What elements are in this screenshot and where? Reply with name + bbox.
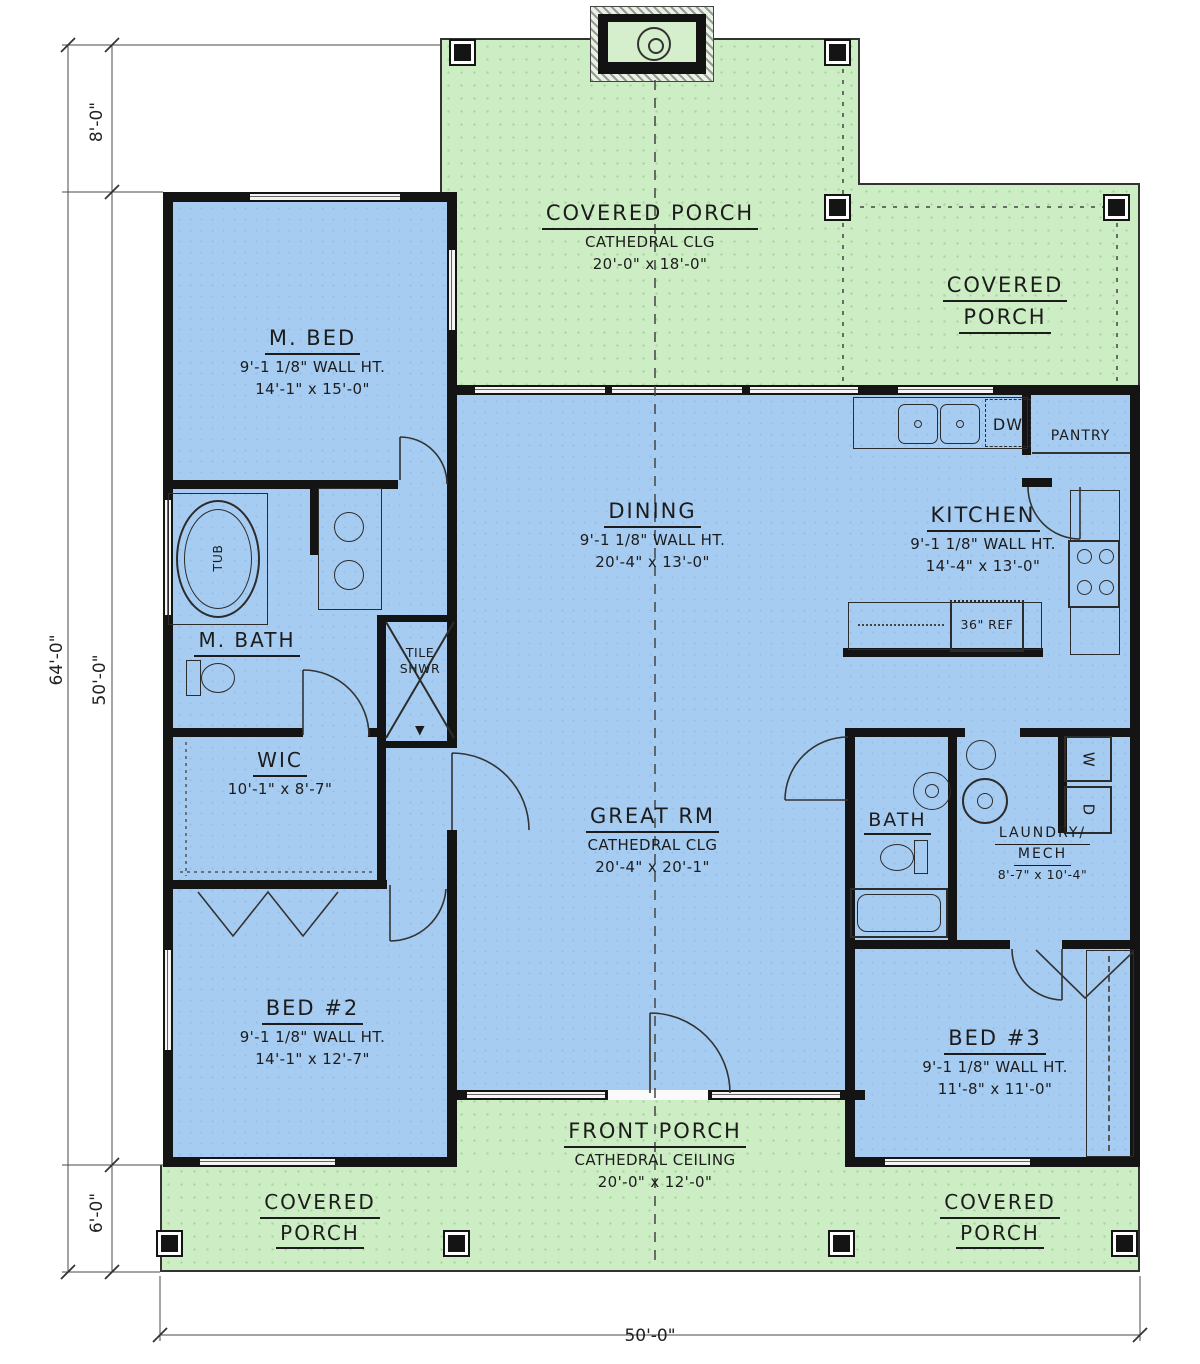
label-bed3: BED #3 9'-1 1/8" WALL HT. 11'-8" x 11'-0… — [855, 1025, 1135, 1099]
dim-bottom-offset: 6'-0" — [87, 1171, 107, 1255]
label-covered-porch-top: COVERED PORCH CATHEDRAL CLG 20'-0" x 18'… — [460, 200, 840, 274]
porch-post — [449, 39, 476, 66]
label-bed2: BED #2 9'-1 1/8" WALL HT. 14'-1" x 12'-7… — [175, 995, 450, 1069]
label-covered-porch-top-right: COVERED PORCH — [905, 272, 1105, 336]
label-great-room: GREAT RM CATHEDRAL CLG 20'-4" x 20'-1" — [490, 803, 815, 877]
dim-overall-height: 64'-0" — [47, 618, 67, 702]
porch-post — [443, 1230, 470, 1257]
dim-top-offset: 8'-0" — [87, 80, 107, 164]
label-wic: WIC 10'-1" x 8'-7" — [195, 748, 365, 799]
room-size: 20'-0" x 18'-0" — [460, 255, 840, 274]
label-m-bed: M. BED 9'-1 1/8" WALL HT. 14'-1" x 15'-0… — [175, 325, 450, 399]
label-covered-porch-bottom-left: COVERED PORCH — [220, 1190, 420, 1251]
wall-height: 9'-1 1/8" WALL HT. — [855, 1058, 1135, 1077]
porch-post — [1103, 194, 1130, 221]
room-size: 20'-4" x 20'-1" — [490, 858, 815, 877]
room-name: COVERED — [940, 1190, 1060, 1219]
label-m-bath: M. BATH — [172, 628, 322, 657]
porch-post — [156, 1230, 183, 1257]
room-size: 20'-0" x 12'-0" — [460, 1173, 850, 1192]
room-name: LAUNDRY/ — [995, 825, 1090, 845]
label-covered-porch-bottom-right: COVERED PORCH — [900, 1190, 1100, 1251]
room-name: WIC — [253, 748, 307, 777]
room-name: COVERED — [260, 1190, 380, 1219]
room-name: MECH — [1014, 846, 1071, 866]
room-size: 14'-1" x 12'-7" — [175, 1050, 450, 1069]
room-size: 8'-7" x 10'-4" — [955, 867, 1130, 883]
porch-post — [1111, 1230, 1138, 1257]
wall-height: 9'-1 1/8" WALL HT. — [490, 531, 815, 550]
label-pantry: PANTRY — [1028, 428, 1133, 446]
label-front-porch: FRONT PORCH CATHEDRAL CEILING 20'-0" x 1… — [460, 1118, 850, 1192]
room-name: PORCH — [276, 1221, 364, 1250]
wall-height: 9'-1 1/8" WALL HT. — [175, 1028, 450, 1047]
room-size: 20'-4" x 13'-0" — [490, 553, 815, 572]
porch-post — [828, 1230, 855, 1257]
shower-head-mark: ▼ — [408, 722, 432, 738]
room-name: GREAT RM — [586, 803, 719, 833]
ceiling-note: CATHEDRAL CLG — [490, 836, 815, 855]
ceiling-note: CATHEDRAL CEILING — [460, 1151, 850, 1170]
room-name: M. BED — [265, 325, 360, 355]
room-size: 14'-1" x 15'-0" — [175, 380, 450, 399]
floor-plan: COVERED PORCH CATHEDRAL CLG 20'-0" x 18'… — [0, 0, 1200, 1364]
room-size: 11'-8" x 11'-0" — [855, 1080, 1135, 1099]
room-name: BED #2 — [262, 995, 363, 1025]
room-name: PORCH — [959, 304, 1050, 334]
porch-post — [824, 39, 851, 66]
label-dining: DINING 9'-1 1/8" WALL HT. 20'-4" x 13'-0… — [490, 498, 815, 572]
dim-overall-width: 50'-0" — [590, 1326, 710, 1346]
room-name: BED #3 — [944, 1025, 1045, 1055]
label-washer: W — [1078, 748, 1097, 772]
wall-height: 9'-1 1/8" WALL HT. — [858, 535, 1108, 554]
room-name: PORCH — [956, 1221, 1044, 1250]
wall-height: 9'-1 1/8" WALL HT. — [175, 358, 450, 377]
label-kitchen: KITCHEN 9'-1 1/8" WALL HT. 14'-4" x 13'-… — [858, 502, 1108, 576]
label-laundry: LAUNDRY/ MECH 8'-7" x 10'-4" — [955, 825, 1130, 883]
room-name: TILE — [385, 645, 455, 661]
room-name: KITCHEN — [927, 502, 1040, 532]
label-tub: TUB — [210, 528, 226, 588]
label-bath: BATH — [850, 808, 945, 835]
room-name: DINING — [604, 498, 700, 528]
room-name: COVERED PORCH — [542, 200, 758, 230]
room-name: FRONT PORCH — [564, 1118, 746, 1148]
room-name: SHWR — [385, 661, 455, 677]
room-name: COVERED — [943, 272, 1068, 302]
room-name: M. BATH — [194, 628, 299, 657]
ceiling-note: CATHEDRAL CLG — [460, 233, 840, 252]
label-dryer: D — [1078, 798, 1097, 822]
room-size: 14'-4" x 13'-0" — [858, 557, 1108, 576]
label-tile-shower: TILE SHWR — [385, 645, 455, 677]
room-name: BATH — [864, 808, 930, 835]
porch-post — [824, 194, 851, 221]
room-size: 10'-1" x 8'-7" — [195, 780, 365, 799]
dim-house-depth: 50'-0" — [90, 638, 110, 722]
label-refrigerator: 36" REF — [952, 617, 1022, 633]
